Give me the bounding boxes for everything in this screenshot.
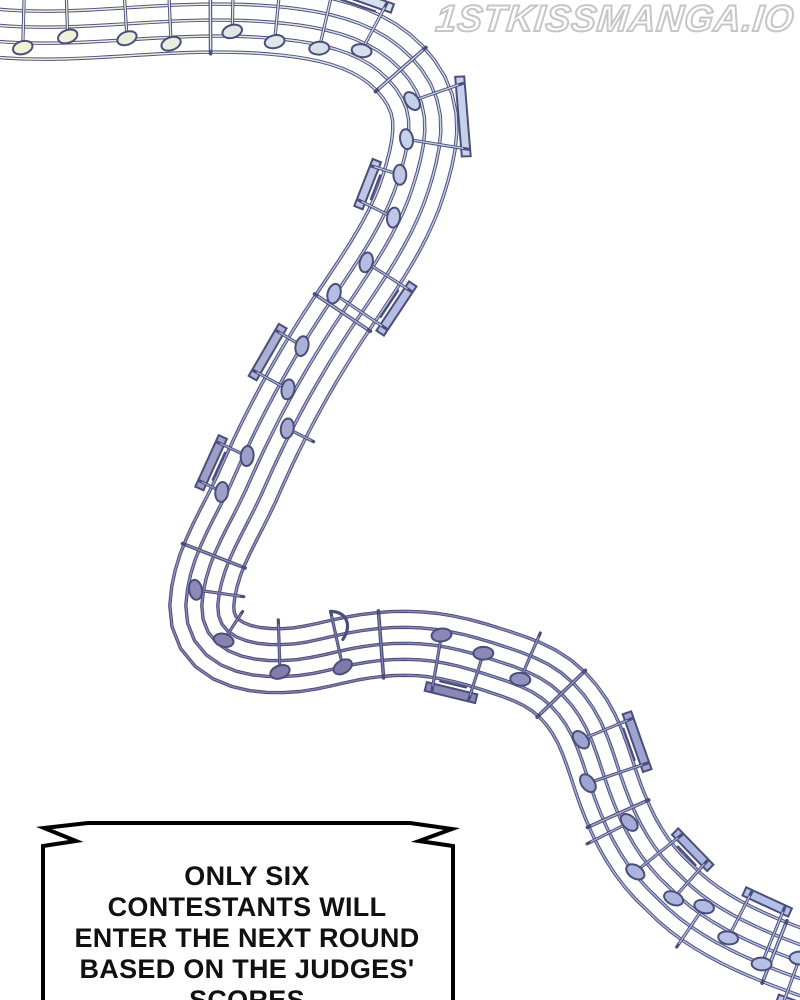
speech-bubble	[0, 0, 800, 1000]
speech-bubble-line: ONLY SIX	[47, 861, 447, 892]
speech-bubble-line: ENTER THE NEXT ROUND	[47, 923, 447, 954]
speech-bubble-line: SCORES	[47, 985, 447, 1000]
manga-page: 1STKISSMANGA.IO ONLY SIX CONTESTANTS WIL…	[0, 0, 800, 1000]
speech-bubble-text: ONLY SIX CONTESTANTS WILL ENTER THE NEXT…	[47, 861, 447, 1000]
speech-bubble-line: BASED ON THE JUDGES'	[47, 954, 447, 985]
speech-bubble-line: CONTESTANTS WILL	[47, 892, 447, 923]
